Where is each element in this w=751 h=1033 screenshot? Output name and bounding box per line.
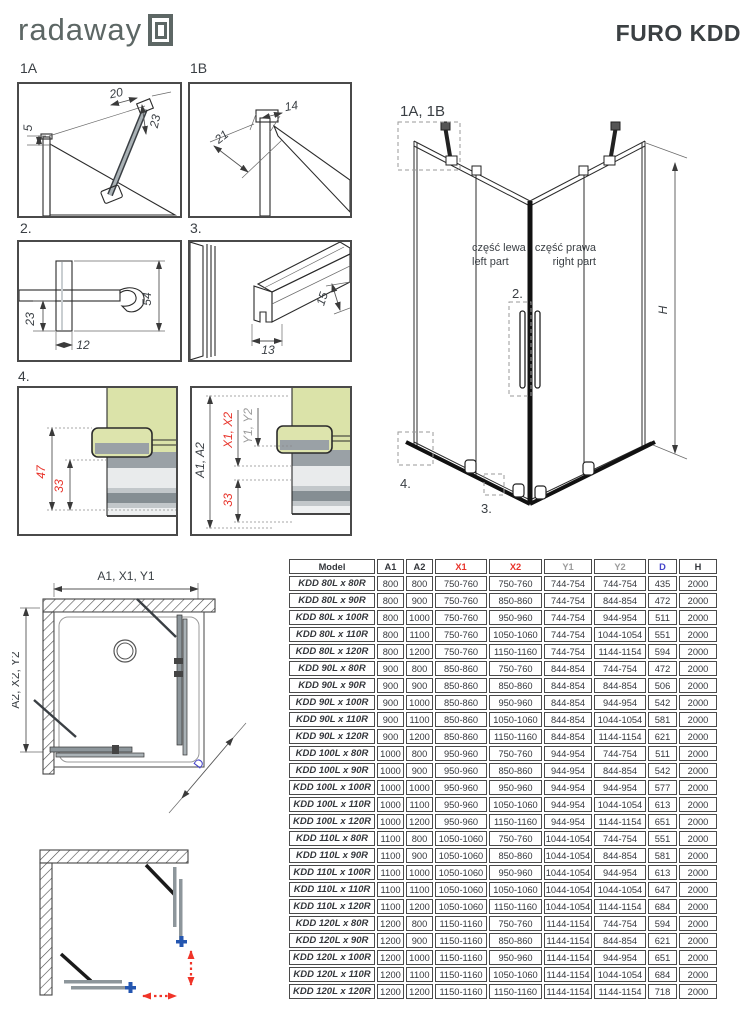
- value-cell: 1144-1154: [594, 984, 646, 999]
- callouts: 1A, 1B 2. 3. 4.: [398, 103, 531, 516]
- value-cell: 750-760: [435, 576, 487, 591]
- value-cell: 744-754: [544, 644, 592, 659]
- model-cell: KDD 80L x 80R: [289, 576, 375, 591]
- value-cell: 2000: [679, 899, 717, 914]
- table-row: KDD 80L x 90R800900750-760850-860744-754…: [289, 593, 717, 608]
- table-row: KDD 120L x 80R12008001150-1160750-760114…: [289, 916, 717, 931]
- value-cell: 944-954: [594, 610, 646, 625]
- value-cell: 950-960: [435, 763, 487, 778]
- value-cell: 1044-1054: [544, 899, 592, 914]
- value-cell: 1150-1160: [489, 814, 542, 829]
- value-cell: 1150-1160: [489, 729, 542, 744]
- model-cell: KDD 90L x 90R: [289, 678, 375, 693]
- value-cell: 800: [377, 627, 404, 642]
- model-cell: KDD 110L x 100R: [289, 865, 375, 880]
- model-cell: KDD 110L x 120R: [289, 899, 375, 914]
- value-cell: 800: [406, 661, 433, 676]
- detail-2-box: 54 23 12: [17, 240, 182, 362]
- callout-4: 4.: [400, 476, 411, 491]
- detail-3-drawing: 13 15: [190, 242, 350, 360]
- dim-33: 33: [52, 479, 66, 493]
- dim-a1-a2: A1, A2: [193, 442, 207, 479]
- value-cell: 1144-1154: [544, 984, 592, 999]
- value-cell: 1050-1060: [489, 967, 542, 982]
- model-cell: KDD 80L x 110R: [289, 627, 375, 642]
- value-cell: 1144-1154: [594, 814, 646, 829]
- value-cell: 581: [648, 848, 677, 863]
- detail-3-box: 13 15: [188, 240, 352, 362]
- iso-view: 1A, 1B 2. 3. 4. część lewa left part czę…: [388, 96, 751, 548]
- detail-2-label: 2.: [20, 220, 32, 236]
- value-cell: 950-960: [489, 950, 542, 965]
- value-cell: 744-754: [544, 627, 592, 642]
- value-cell: 1044-1054: [594, 712, 646, 727]
- value-cell: 950-960: [435, 814, 487, 829]
- value-cell: 850-860: [435, 712, 487, 727]
- value-cell: 750-760: [435, 627, 487, 642]
- model-cell: KDD 100L x 120R: [289, 814, 375, 829]
- value-cell: 511: [648, 610, 677, 625]
- model-cell: KDD 100L x 100R: [289, 780, 375, 795]
- table-row: KDD 90L x 120R9001200850-8601150-1160844…: [289, 729, 717, 744]
- support-bar: [49, 99, 153, 204]
- value-cell: 844-854: [594, 933, 646, 948]
- value-cell: 1200: [377, 933, 404, 948]
- dim-21: 21: [211, 127, 231, 147]
- table-row: KDD 110L x 90R11009001050-1060850-860104…: [289, 848, 717, 863]
- value-cell: 2000: [679, 610, 717, 625]
- value-cell: 850-860: [489, 933, 542, 948]
- value-cell: 684: [648, 899, 677, 914]
- value-cell: 472: [648, 661, 677, 676]
- value-cell: 1044-1054: [544, 882, 592, 897]
- value-cell: 1200: [406, 899, 433, 914]
- schematic-drawing: [28, 842, 258, 1022]
- table-row: KDD 100L x 80R1000800950-960750-760944-9…: [289, 746, 717, 761]
- value-cell: 2000: [679, 780, 717, 795]
- dimension-lines: 20 23 5: [21, 85, 171, 145]
- model-cell: KDD 90L x 80R: [289, 661, 375, 676]
- value-cell: 506: [648, 678, 677, 693]
- value-cell: 1144-1154: [594, 729, 646, 744]
- value-cell: 800: [377, 576, 404, 591]
- value-cell: 651: [648, 950, 677, 965]
- radaway-logo: radaway: [18, 12, 173, 48]
- value-cell: 1100: [406, 967, 433, 982]
- value-cell: 621: [648, 933, 677, 948]
- value-cell: 1044-1054: [594, 967, 646, 982]
- value-cell: 1100: [406, 882, 433, 897]
- value-cell: 1050-1060: [435, 865, 487, 880]
- sill-section: [92, 388, 176, 516]
- value-cell: 944-954: [544, 814, 592, 829]
- value-cell: 435: [648, 576, 677, 591]
- value-cell: 1150-1160: [489, 984, 542, 999]
- value-cell: 800: [406, 746, 433, 761]
- model-cell: KDD 80L x 120R: [289, 644, 375, 659]
- value-cell: 581: [648, 712, 677, 727]
- value-cell: 1150-1160: [435, 950, 487, 965]
- value-cell: 944-954: [594, 865, 646, 880]
- table-row: KDD 120L x 120R120012001150-11601150-116…: [289, 984, 717, 999]
- value-cell: 542: [648, 695, 677, 710]
- plan-drawing: A1, X1, Y1 A2, X2, Y2: [12, 563, 275, 831]
- value-cell: 750-760: [489, 661, 542, 676]
- value-cell: 950-960: [435, 797, 487, 812]
- value-cell: 511: [648, 746, 677, 761]
- value-cell: 744-754: [544, 576, 592, 591]
- walls: [40, 850, 188, 995]
- value-cell: 1044-1054: [544, 831, 592, 846]
- value-cell: 1100: [377, 865, 404, 880]
- value-cell: 1100: [377, 848, 404, 863]
- table-row: KDD 90L x 80R900800850-860750-760844-854…: [289, 661, 717, 676]
- value-cell: 900: [377, 712, 404, 727]
- spec-table: ModelA1A2X1X2Y1Y2DH KDD 80L x 80R8008007…: [287, 557, 719, 1001]
- model-cell: KDD 80L x 100R: [289, 610, 375, 625]
- value-cell: 950-960: [489, 780, 542, 795]
- value-cell: 1150-1160: [489, 644, 542, 659]
- value-cell: 750-760: [489, 576, 542, 591]
- logo-square-icon: [148, 14, 173, 46]
- dimension-lines: 54 23 12: [23, 261, 165, 352]
- value-cell: 744-754: [544, 593, 592, 608]
- value-cell: 950-960: [489, 695, 542, 710]
- value-cell: 1050-1060: [435, 899, 487, 914]
- value-cell: 1200: [377, 984, 404, 999]
- value-cell: 718: [648, 984, 677, 999]
- dim-left-label: A2, X2, Y2: [12, 651, 22, 709]
- value-cell: 944-954: [594, 695, 646, 710]
- table-row: KDD 80L x 110R8001100750-7601050-1060744…: [289, 627, 717, 642]
- value-cell: 844-854: [594, 593, 646, 608]
- value-cell: 900: [406, 678, 433, 693]
- datasheet-page: radaway FURO KDD 1A: [0, 0, 751, 1033]
- column-header: X2: [489, 559, 542, 574]
- value-cell: 1050-1060: [435, 848, 487, 863]
- model-cell: KDD 80L x 90R: [289, 593, 375, 608]
- dim-5: 5: [21, 124, 35, 131]
- value-cell: 651: [648, 814, 677, 829]
- model-cell: KDD 100L x 80R: [289, 746, 375, 761]
- value-cell: 750-760: [435, 610, 487, 625]
- left-part-label-pl: część lewa: [472, 242, 527, 254]
- value-cell: 1200: [406, 729, 433, 744]
- wall-profile: [256, 110, 350, 216]
- stabilizer-bars: [441, 122, 620, 175]
- value-cell: 1200: [406, 644, 433, 659]
- value-cell: 1144-1154: [544, 933, 592, 948]
- value-cell: 2000: [679, 967, 717, 982]
- value-cell: 850-860: [435, 661, 487, 676]
- plan-view: A1, X1, Y1 A2, X2, Y2: [12, 563, 275, 831]
- column-header: Model: [289, 559, 375, 574]
- model-cell: KDD 110L x 110R: [289, 882, 375, 897]
- value-cell: 613: [648, 865, 677, 880]
- iso-drawing: 1A, 1B 2. 3. 4. część lewa left part czę…: [388, 96, 751, 548]
- spec-table-header-row: ModelA1A2X1X2Y1Y2DH: [289, 559, 717, 574]
- value-cell: 1050-1060: [489, 882, 542, 897]
- column-header: Y1: [544, 559, 592, 574]
- value-cell: 944-954: [594, 780, 646, 795]
- value-cell: 2000: [679, 865, 717, 880]
- value-cell: 1000: [377, 746, 404, 761]
- value-cell: 850-860: [489, 678, 542, 693]
- value-cell: 1150-1160: [435, 967, 487, 982]
- value-cell: 744-754: [544, 610, 592, 625]
- value-cell: 1044-1054: [594, 797, 646, 812]
- column-header: D: [648, 559, 677, 574]
- value-cell: 844-854: [594, 678, 646, 693]
- value-cell: 1050-1060: [489, 712, 542, 727]
- value-cell: 1200: [377, 967, 404, 982]
- value-cell: 750-760: [489, 746, 542, 761]
- value-cell: 2000: [679, 576, 717, 591]
- detail-4-label: 4.: [18, 368, 30, 384]
- value-cell: 950-960: [489, 610, 542, 625]
- value-cell: 1000: [406, 695, 433, 710]
- value-cell: 1050-1060: [489, 627, 542, 642]
- value-cell: 744-754: [594, 661, 646, 676]
- table-row: KDD 80L x 120R8001200750-7601150-1160744…: [289, 644, 717, 659]
- value-cell: 2000: [679, 695, 717, 710]
- value-cell: 944-954: [544, 797, 592, 812]
- value-cell: 744-754: [594, 576, 646, 591]
- glass-panel: [41, 134, 175, 216]
- value-cell: 613: [648, 797, 677, 812]
- value-cell: 1050-1060: [489, 797, 542, 812]
- spec-table-body: KDD 80L x 80R800800750-760750-760744-754…: [289, 576, 717, 999]
- dim-54: 54: [140, 292, 154, 306]
- table-row: KDD 90L x 90R900900850-860850-860844-854…: [289, 678, 717, 693]
- value-cell: 750-760: [489, 831, 542, 846]
- value-cell: 1000: [377, 814, 404, 829]
- value-cell: 800: [377, 593, 404, 608]
- value-cell: 1044-1054: [594, 882, 646, 897]
- value-cell: 844-854: [594, 763, 646, 778]
- dim-x1-x2: X1, X2: [221, 412, 235, 449]
- column-header: A1: [377, 559, 404, 574]
- value-cell: 1100: [377, 831, 404, 846]
- height-dimension: H: [646, 143, 687, 459]
- value-cell: 1144-1154: [594, 899, 646, 914]
- column-header: A2: [406, 559, 433, 574]
- model-cell: KDD 90L x 100R: [289, 695, 375, 710]
- value-cell: 900: [377, 695, 404, 710]
- detail-4-left-box: 47 33: [17, 386, 178, 536]
- value-cell: 944-954: [544, 763, 592, 778]
- bottom-rail-profile: [254, 242, 350, 322]
- right-part-label-en: right part: [553, 256, 596, 268]
- table-row: KDD 110L x 110R110011001050-10601050-106…: [289, 882, 717, 897]
- dimension-lines: 14 21: [210, 98, 299, 178]
- detail-1b-drawing: 14 21: [190, 84, 350, 216]
- value-cell: 844-854: [544, 695, 592, 710]
- detail-1a-box: 20 23 5: [17, 82, 182, 218]
- table-row: KDD 100L x 120R10001200950-9601150-11609…: [289, 814, 717, 829]
- value-cell: 2000: [679, 814, 717, 829]
- value-cell: 2000: [679, 678, 717, 693]
- model-cell: KDD 100L x 90R: [289, 763, 375, 778]
- value-cell: 2000: [679, 848, 717, 863]
- table-row: KDD 110L x 120R110012001050-10601150-116…: [289, 899, 717, 914]
- dimension-lines: A1, A2 X1, X2 Y1, Y2 33: [193, 396, 292, 528]
- column-header: X1: [435, 559, 487, 574]
- dim-13: 13: [261, 343, 275, 357]
- value-cell: 1144-1154: [594, 644, 646, 659]
- value-cell: 800: [406, 576, 433, 591]
- value-cell: 1000: [377, 780, 404, 795]
- logo-text: radaway: [18, 12, 142, 48]
- dim-h: H: [656, 305, 670, 314]
- value-cell: 2000: [679, 593, 717, 608]
- value-cell: 900: [406, 763, 433, 778]
- table-row: KDD 110L x 80R11008001050-1060750-760104…: [289, 831, 717, 846]
- dim-33: 33: [221, 493, 235, 507]
- dim-23: 23: [147, 113, 164, 130]
- value-cell: 1200: [406, 814, 433, 829]
- table-row: KDD 100L x 100R10001000950-960950-960944…: [289, 780, 717, 795]
- table-row: KDD 110L x 100R110010001050-1060950-9601…: [289, 865, 717, 880]
- detail-1b-label: 1B: [190, 60, 207, 76]
- table-row: KDD 80L x 80R800800750-760750-760744-754…: [289, 576, 717, 591]
- detail-4-left-drawing: 47 33: [19, 388, 176, 534]
- value-cell: 1100: [377, 882, 404, 897]
- value-cell: 551: [648, 627, 677, 642]
- glass-edge: [190, 242, 215, 360]
- value-cell: 1050-1060: [435, 882, 487, 897]
- table-row: KDD 80L x 100R8001000750-760950-960744-7…: [289, 610, 717, 625]
- value-cell: 1200: [377, 916, 404, 931]
- value-cell: 2000: [679, 950, 717, 965]
- value-cell: 850-860: [489, 763, 542, 778]
- value-cell: 750-760: [435, 644, 487, 659]
- dim-12: 12: [76, 338, 90, 352]
- value-cell: 1000: [377, 797, 404, 812]
- model-cell: KDD 120L x 90R: [289, 933, 375, 948]
- value-cell: 800: [406, 831, 433, 846]
- value-cell: 1144-1154: [544, 916, 592, 931]
- model-cell: KDD 120L x 80R: [289, 916, 375, 931]
- value-cell: 2000: [679, 984, 717, 999]
- value-cell: 1150-1160: [435, 916, 487, 931]
- model-cell: KDD 100L x 110R: [289, 797, 375, 812]
- table-row: KDD 120L x 110R120011001150-11601050-106…: [289, 967, 717, 982]
- value-cell: 1100: [406, 712, 433, 727]
- detail-1b-box: 14 21: [188, 82, 352, 218]
- value-cell: 944-954: [544, 746, 592, 761]
- callout-2: 2.: [512, 286, 523, 301]
- value-cell: 1150-1160: [435, 984, 487, 999]
- value-cell: 1150-1160: [489, 899, 542, 914]
- sliding-schematic: [28, 842, 258, 1022]
- value-cell: 844-854: [594, 848, 646, 863]
- value-cell: 542: [648, 763, 677, 778]
- value-cell: 844-854: [544, 712, 592, 727]
- value-cell: 900: [377, 678, 404, 693]
- value-cell: 850-860: [435, 695, 487, 710]
- model-cell: KDD 120L x 120R: [289, 984, 375, 999]
- value-cell: 2000: [679, 746, 717, 761]
- value-cell: 800: [377, 644, 404, 659]
- callout-3: 3.: [481, 501, 492, 516]
- value-cell: 684: [648, 967, 677, 982]
- dim-y1-y2: Y1, Y2: [241, 408, 255, 444]
- value-cell: 850-860: [435, 678, 487, 693]
- dim-20: 20: [107, 85, 124, 102]
- value-cell: 750-760: [489, 916, 542, 931]
- right-part-label-pl: część prawa: [535, 242, 597, 254]
- table-row: KDD 100L x 90R1000900950-960850-860944-9…: [289, 763, 717, 778]
- value-cell: 2000: [679, 882, 717, 897]
- value-cell: 2000: [679, 797, 717, 812]
- detail-4-right-drawing: A1, A2 X1, X2 Y1, Y2 33: [192, 388, 350, 534]
- value-cell: 850-860: [435, 729, 487, 744]
- value-cell: 850-860: [489, 593, 542, 608]
- dim-top-label: A1, X1, Y1: [97, 569, 155, 583]
- detail-3-label: 3.: [190, 220, 202, 236]
- dimension-lines: 13 15: [252, 282, 350, 357]
- value-cell: 2000: [679, 729, 717, 744]
- value-cell: 900: [406, 848, 433, 863]
- detail-2-drawing: 54 23 12: [19, 242, 180, 360]
- dim-23: 23: [23, 312, 37, 327]
- table-row: KDD 90L x 110R9001100850-8601050-1060844…: [289, 712, 717, 727]
- dim-47: 47: [34, 464, 48, 479]
- value-cell: 2000: [679, 763, 717, 778]
- value-cell: 744-754: [594, 916, 646, 931]
- value-cell: 2000: [679, 644, 717, 659]
- value-cell: 944-954: [544, 780, 592, 795]
- value-cell: 594: [648, 644, 677, 659]
- detail-1a-drawing: 20 23 5: [19, 84, 180, 216]
- handle-markers: [125, 936, 187, 993]
- model-cell: KDD 90L x 110R: [289, 712, 375, 727]
- value-cell: 551: [648, 831, 677, 846]
- table-row: KDD 90L x 100R9001000850-860950-960844-8…: [289, 695, 717, 710]
- value-cell: 2000: [679, 916, 717, 931]
- value-cell: 844-854: [544, 729, 592, 744]
- model-cell: KDD 120L x 100R: [289, 950, 375, 965]
- value-cell: 900: [377, 729, 404, 744]
- value-cell: 1000: [406, 950, 433, 965]
- value-cell: 2000: [679, 712, 717, 727]
- model-cell: KDD 110L x 80R: [289, 831, 375, 846]
- value-cell: 1144-1154: [544, 950, 592, 965]
- model-cell: KDD 120L x 110R: [289, 967, 375, 982]
- left-part-label-en: left part: [472, 256, 509, 268]
- value-cell: 950-960: [489, 865, 542, 880]
- value-cell: 744-754: [594, 831, 646, 846]
- door-panels: [61, 865, 187, 993]
- handle-section: [19, 261, 144, 331]
- value-cell: 647: [648, 882, 677, 897]
- product-title: FURO KDD: [616, 20, 741, 47]
- value-cell: 472: [648, 593, 677, 608]
- value-cell: 1000: [406, 865, 433, 880]
- value-cell: 844-854: [544, 678, 592, 693]
- value-cell: 2000: [679, 933, 717, 948]
- value-cell: 1044-1054: [544, 848, 592, 863]
- value-cell: 621: [648, 729, 677, 744]
- column-header: Y2: [594, 559, 646, 574]
- model-cell: KDD 90L x 120R: [289, 729, 375, 744]
- value-cell: 800: [377, 610, 404, 625]
- callout-1a-1b: 1A, 1B: [400, 103, 445, 120]
- value-cell: 1044-1054: [544, 865, 592, 880]
- table-row: KDD 120L x 90R12009001150-1160850-860114…: [289, 933, 717, 948]
- value-cell: 844-854: [544, 661, 592, 676]
